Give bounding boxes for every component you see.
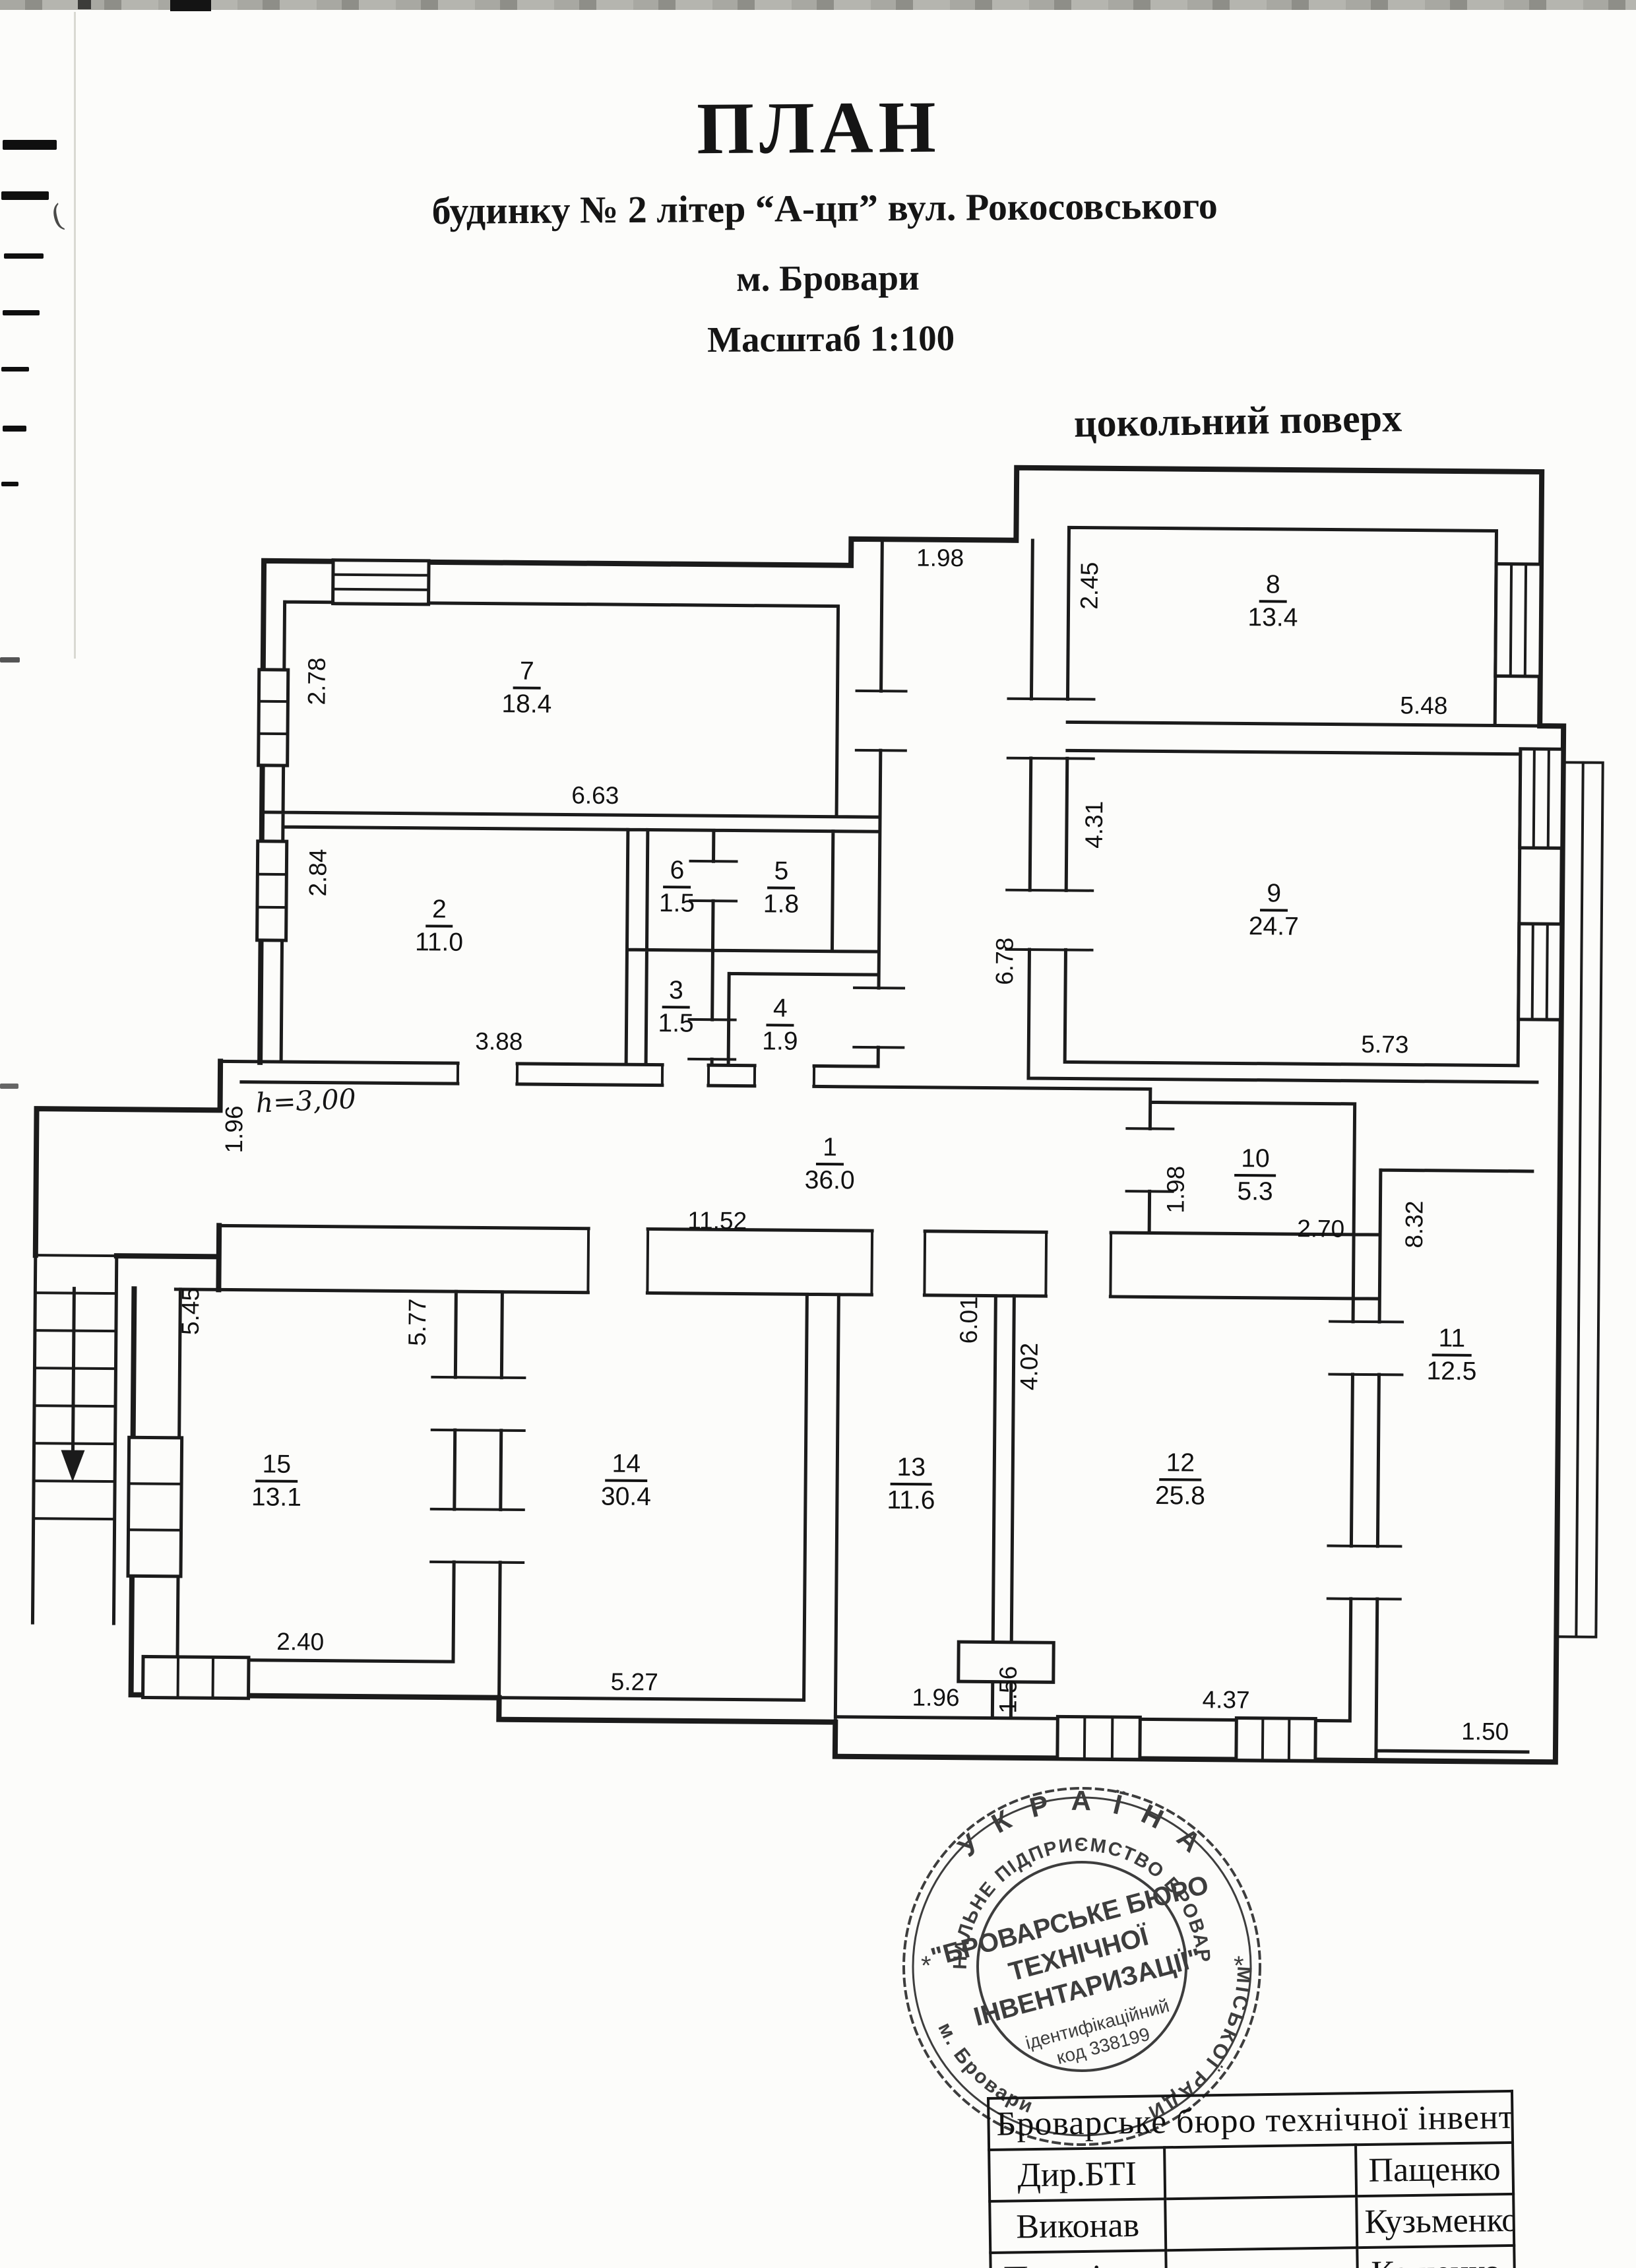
name-cell: Кащенко — [1357, 2246, 1515, 2268]
room-label-4: 41.9 — [762, 995, 798, 1055]
name-cell: Кузьменко — [1356, 2194, 1514, 2248]
room-label-12: 1225.8 — [1155, 1450, 1206, 1510]
dim-room12-height: 4.02 — [1015, 1343, 1044, 1390]
dim-room13-width: 1.96 — [912, 1684, 959, 1712]
dim-room13-height: 6.01 — [955, 1296, 984, 1344]
table-row: Дир.БТІ Пащенко — [989, 2143, 1513, 2201]
room-label-3: 31.5 — [658, 977, 694, 1037]
stair-down-arrow-icon — [61, 1450, 84, 1481]
dim-corridor1-length: 11.52 — [687, 1207, 747, 1235]
room-label-10: 105.3 — [1234, 1146, 1276, 1206]
name-cell: Пащенко — [1356, 2143, 1513, 2196]
dim-room15-height: 5.45 — [177, 1287, 205, 1335]
dim-room12-width: 4.37 — [1202, 1686, 1249, 1714]
room-label-14: 1430.4 — [601, 1450, 652, 1510]
room-label-15: 1513.1 — [251, 1451, 302, 1511]
dim-corridor-length: 6.78 — [991, 938, 1019, 985]
dim-room7-width: 6.63 — [571, 782, 619, 810]
dim-room15-width: 2.40 — [276, 1628, 324, 1656]
dim-room14-width: 5.27 — [611, 1668, 658, 1697]
signature-cell — [1164, 2145, 1356, 2199]
signature-cell — [1166, 2248, 1358, 2268]
dim-room9-upper: 4.31 — [1081, 801, 1109, 849]
dim-room2-height: 2.84 — [304, 849, 332, 896]
signature-cell — [1165, 2196, 1357, 2250]
room-label-9: 924.7 — [1249, 880, 1300, 940]
table-header: Броварське бюро технічної інвентаризації — [988, 2091, 1513, 2150]
dim-room2-width: 3.88 — [475, 1027, 522, 1056]
stamp-star-left: * — [921, 1951, 931, 1980]
dim-room7-height: 2.78 — [303, 657, 331, 705]
dim-corridor-width: 1.98 — [916, 544, 964, 573]
dim-room8-height: 2.45 — [1076, 562, 1104, 610]
dim-room9-width: 5.73 — [1361, 1031, 1408, 1059]
table-row: Виконав Кузьменко — [990, 2194, 1514, 2253]
room-label-5: 51.8 — [763, 858, 800, 918]
dim-room11-height: 8.32 — [1400, 1200, 1429, 1248]
room-label-2: 211.0 — [415, 896, 464, 956]
room-label-1: 136.0 — [805, 1134, 856, 1194]
dim-room10-height: 1.98 — [1162, 1166, 1190, 1214]
role-cell: Виконав — [990, 2199, 1166, 2253]
signature-table: Броварське бюро технічної інвентаризації… — [987, 2090, 1517, 2268]
room-label-13: 1311.6 — [887, 1454, 935, 1514]
role-cell: Перевірив — [990, 2250, 1166, 2268]
room-label-7: 718.4 — [501, 658, 552, 718]
table-header-row: Броварське бюро технічної інвентаризації — [988, 2091, 1513, 2150]
stair-direction-line — [73, 1289, 74, 1450]
dim-room11-width: 1.50 — [1461, 1718, 1509, 1746]
dim-room8-width: 5.48 — [1400, 692, 1447, 720]
entrance-staircase — [32, 1255, 116, 1623]
ceiling-height-note: h=3,00 — [255, 1083, 357, 1119]
stamp-star-right: * — [1234, 1951, 1244, 1980]
room-label-8: 813.4 — [1247, 571, 1298, 632]
inner-walls — [172, 521, 1565, 1762]
dim-wall-niche: 1.56 — [994, 1666, 1022, 1714]
scanned-floor-plan-page: ( ПЛАН будинку № 2 літер “А-цп” вул. Рок… — [0, 0, 1636, 2268]
dim-room14-height: 5.77 — [404, 1299, 432, 1346]
dim-entrance-width: 1.96 — [220, 1105, 249, 1153]
dim-room10-width: 2.70 — [1297, 1215, 1344, 1243]
room-label-11: 1112.5 — [1426, 1325, 1477, 1385]
room-label-6: 61.5 — [659, 857, 695, 917]
floor-plan-drawing: 136.0 211.0 31.5 41.9 51.8 61.5 718.4 81… — [0, 0, 1636, 2268]
role-cell: Дир.БТІ — [989, 2147, 1165, 2201]
